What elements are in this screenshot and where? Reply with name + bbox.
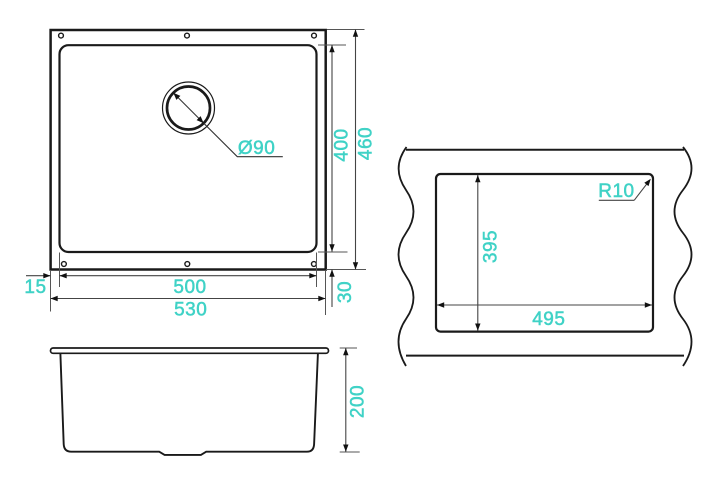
- svg-text:R10: R10: [598, 181, 634, 202]
- svg-text:495: 495: [532, 309, 565, 330]
- svg-text:500: 500: [173, 277, 206, 298]
- svg-text:15: 15: [24, 277, 46, 298]
- svg-text:Ø90: Ø90: [238, 138, 275, 159]
- svg-text:460: 460: [355, 127, 376, 160]
- svg-text:30: 30: [335, 281, 356, 303]
- svg-text:200: 200: [348, 385, 369, 418]
- svg-text:530: 530: [174, 299, 207, 320]
- svg-text:400: 400: [332, 128, 353, 161]
- svg-text:395: 395: [481, 230, 502, 263]
